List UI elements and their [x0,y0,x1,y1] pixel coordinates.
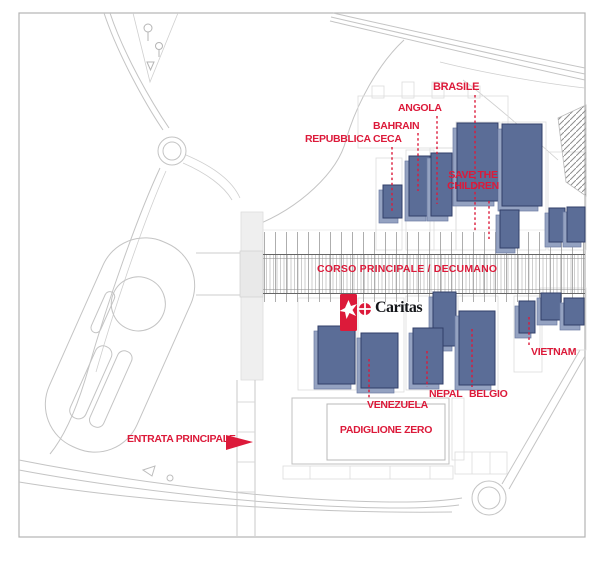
pavilion-building [560,298,584,330]
label-venezuela: VENEZUELA [367,400,428,411]
label-nepal: NEPAL [429,389,462,400]
pavilion-building-nepal [409,328,443,389]
label-corso-principale: CORSO PRINCIPALE / DECUMANO [317,264,497,275]
pavilion-building-save-the-children [498,124,542,211]
map-graphics [0,0,600,564]
label-repubblica-ceca: REPUBBLICA CECA [305,134,402,145]
caritas-marker [340,294,358,331]
label-padiglione-zero: PADIGLIONE ZERO [327,425,445,436]
label-bahrain: BAHRAIN [373,121,419,132]
pavilion-building-belgio [455,311,495,390]
pavilion-building [563,207,585,247]
pavilion-building-vietnam [515,301,535,338]
pavilion-building [379,185,402,223]
pavilion-building-venezuela [357,333,398,393]
pavilion-building [545,208,565,247]
pavilion-building [496,210,519,253]
label-angola: ANGOLA [398,103,442,114]
label-save-the-children: SAVE THE CHILDREN [444,170,502,192]
expo-site-map: BRASILE ANGOLA BAHRAIN REPUBBLICA CECA S… [0,0,600,564]
caritas-logo-text: Caritas [375,299,422,317]
pavilion-building [314,326,355,389]
pavilion-building [537,293,561,325]
label-vietnam: VIETNAM [531,347,576,358]
label-brasile: BRASILE [433,82,479,93]
label-belgio: BELGIO [469,389,507,400]
label-entrata-principale: ENTRATA PRINCIPALE [127,434,236,445]
